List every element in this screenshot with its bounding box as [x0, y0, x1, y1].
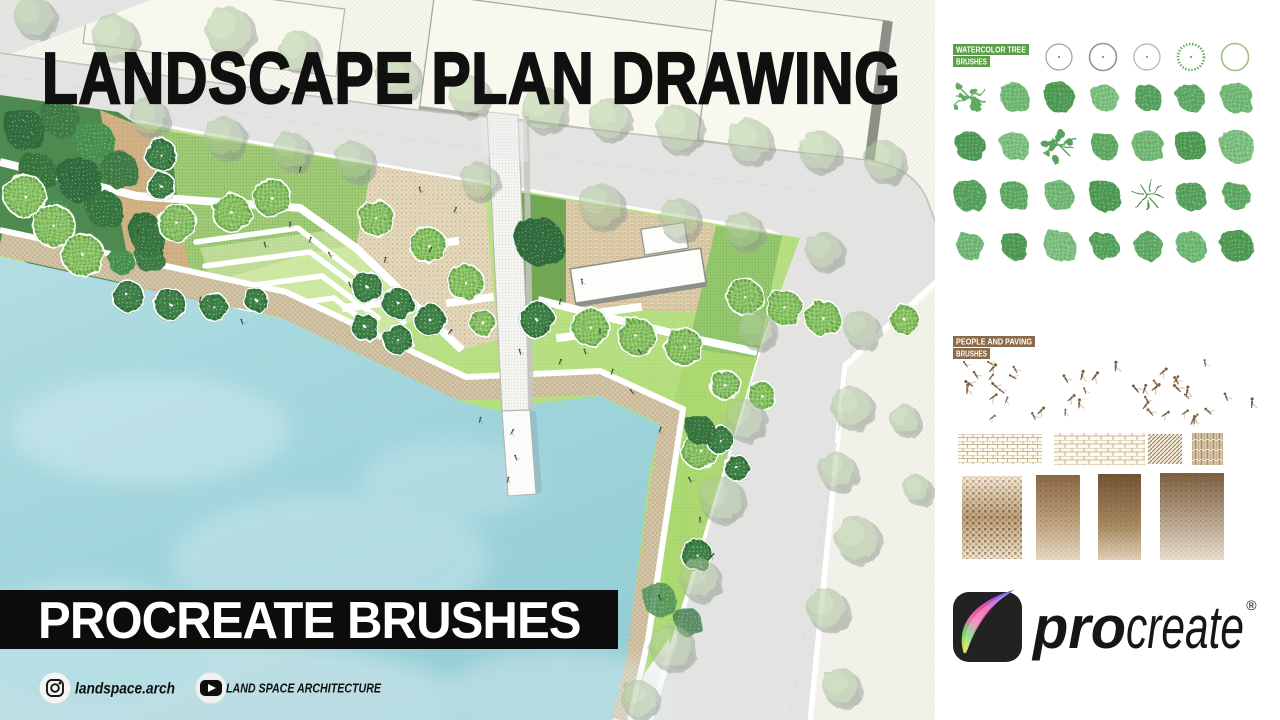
svg-text:BRUSHES: BRUSHES [956, 350, 988, 359]
svg-text:LANDSCAPE PLAN DRAWING: LANDSCAPE PLAN DRAWING [42, 38, 901, 118]
svg-text:PEOPLE AND PAVING: PEOPLE AND PAVING [956, 338, 1032, 347]
svg-text:PROCREATE BRUSHES: PROCREATE BRUSHES [38, 591, 581, 650]
svg-text:landspace.arch: landspace.arch [75, 681, 175, 698]
svg-text:pro: pro [1031, 594, 1126, 661]
svg-text:BRUSHES: BRUSHES [956, 58, 988, 67]
svg-text:create: create [1126, 594, 1244, 661]
svg-text:®: ® [1246, 597, 1257, 613]
svg-text:WATERCOLOR TREE: WATERCOLOR TREE [956, 46, 1027, 55]
svg-text:LAND SPACE ARCHITECTURE: LAND SPACE ARCHITECTURE [226, 682, 382, 696]
